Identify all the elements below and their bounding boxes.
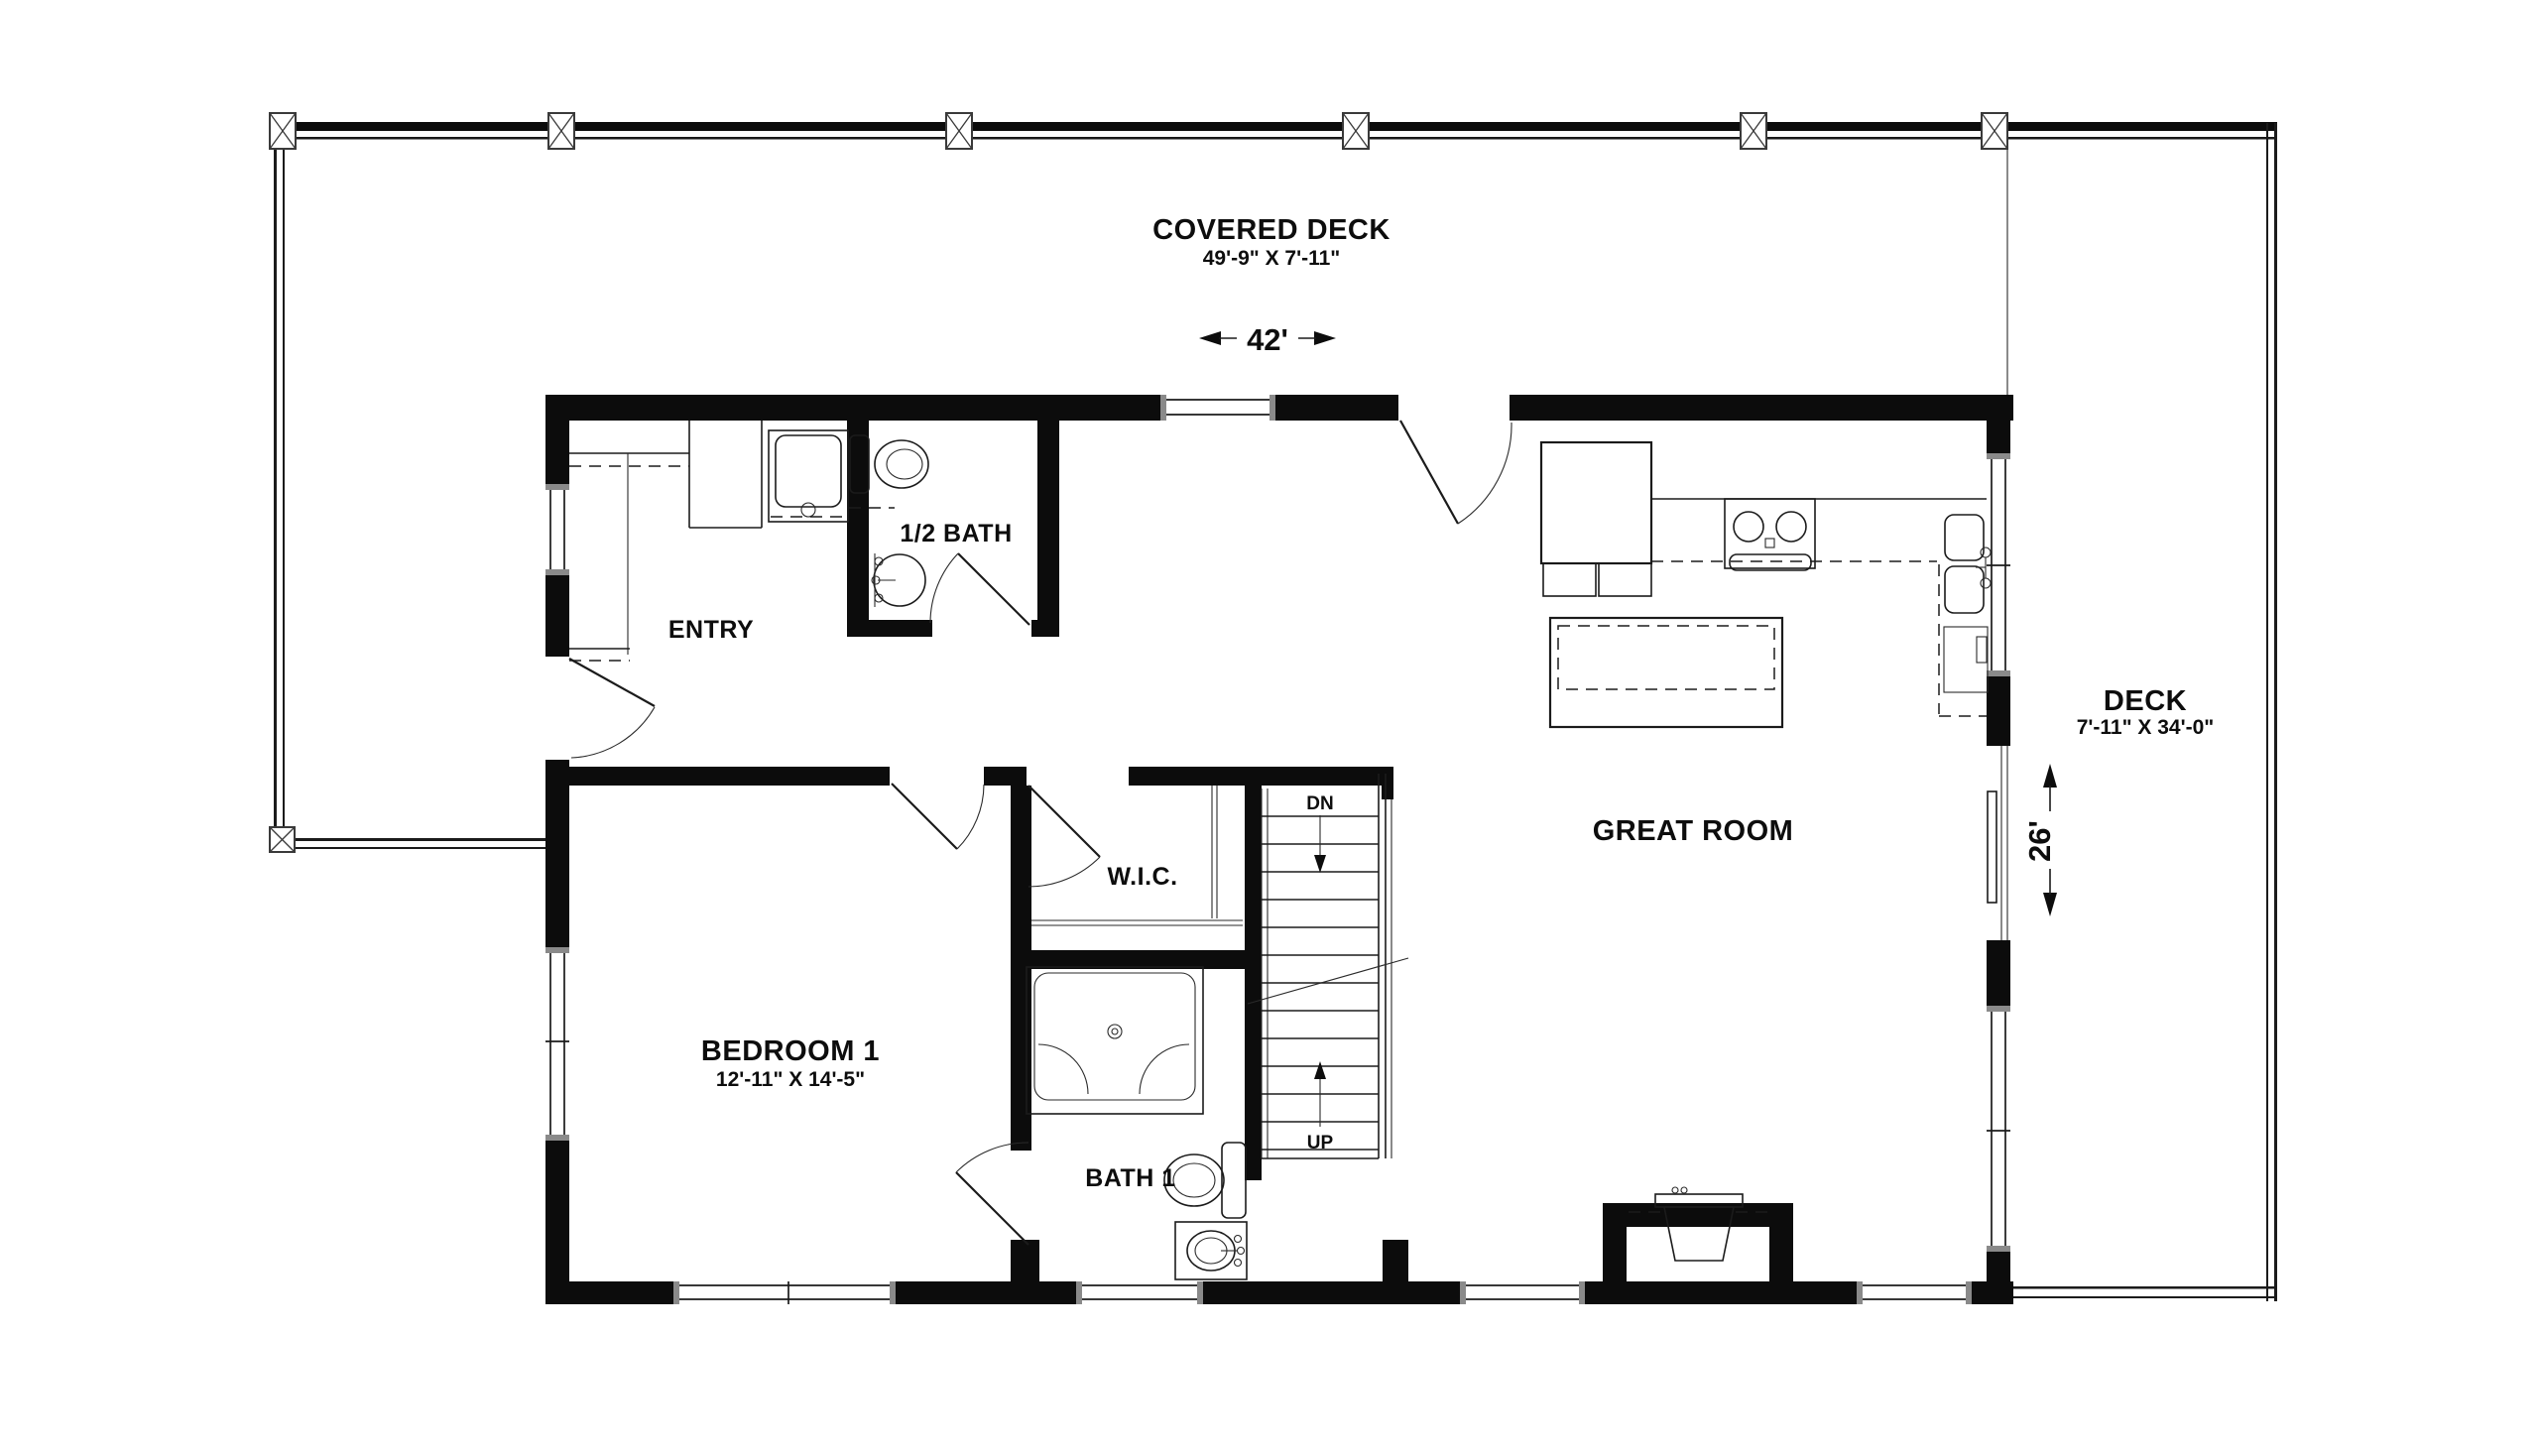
window [1857,1281,1972,1304]
covered-deck-dims: 49'-9" X 7'-11" [1203,247,1340,270]
sink [872,553,925,607]
range [1725,499,1815,570]
dim-42-label: 42' [1247,322,1288,357]
refrigerator [1541,442,1651,596]
vanity-sink [1175,1222,1247,1279]
window [545,947,569,1141]
room-labels: COVERED DECK 49'-9" X 7'-11" DECK 7'-11"… [668,214,2214,1192]
dimension-depth: 26' [2022,764,2057,916]
window [1987,453,2010,676]
floor-plan-page: DN UP [0,0,2539,1456]
wic-door [1028,786,1100,887]
deck-post [270,113,296,149]
wic-label: W.I.C. [1107,863,1177,891]
deck-post [548,113,574,149]
great-room-deck-door [1400,421,1511,524]
shower [1027,967,1203,1114]
deck-label: DECK [2104,685,2187,717]
bath1-door [956,1143,1028,1245]
window [1987,1006,2010,1252]
bedroom1-label: BEDROOM 1 [701,1035,880,1067]
entry-door [569,659,655,758]
deck-post [1741,113,1766,149]
half-bath-label: 1/2 BATH [900,520,1012,547]
dimension-width: 42' [1199,322,1336,357]
stairs-up-label: UP [1307,1133,1334,1153]
deck-post [1343,113,1369,149]
sliding-glass-door [1988,746,2007,940]
deck-post [270,827,295,852]
window [1160,395,1275,421]
fireplace [1603,1187,1793,1281]
stairs-dn-label: DN [1306,793,1333,814]
half-bath-door [930,553,1029,625]
bath1-fixtures [1027,967,1247,1279]
water-heater [769,430,848,522]
stairs: DN UP [1248,774,1408,1158]
wic-rods [1031,786,1243,925]
entry-label: ENTRY [668,616,754,644]
exterior-walls [545,395,2013,1304]
island [1550,618,1782,727]
window [545,484,569,575]
dishwasher [1944,627,1988,692]
kitchen-sink [1945,515,1991,613]
window [1460,1281,1585,1304]
toilet [1164,1143,1246,1218]
bath1-label: BATH 1 [1085,1164,1175,1192]
deck-post [1982,113,2007,149]
bedroom-door [892,784,984,849]
windows [545,395,2010,1304]
kitchen [1541,442,1991,727]
great-room-label: GREAT ROOM [1593,815,1794,847]
dim-26-label: 26' [2022,820,2057,862]
deck-posts [270,113,2007,852]
deck-dims: 7'-11" X 34'-0" [2077,716,2214,739]
covered-deck-label: COVERED DECK [1152,214,1390,246]
bedroom1-dims: 12'-11" X 14'-5" [716,1068,865,1091]
deck-post [946,113,972,149]
window [1076,1281,1203,1304]
floor-plan-drawing: DN UP [0,0,2539,1456]
window [673,1281,896,1304]
